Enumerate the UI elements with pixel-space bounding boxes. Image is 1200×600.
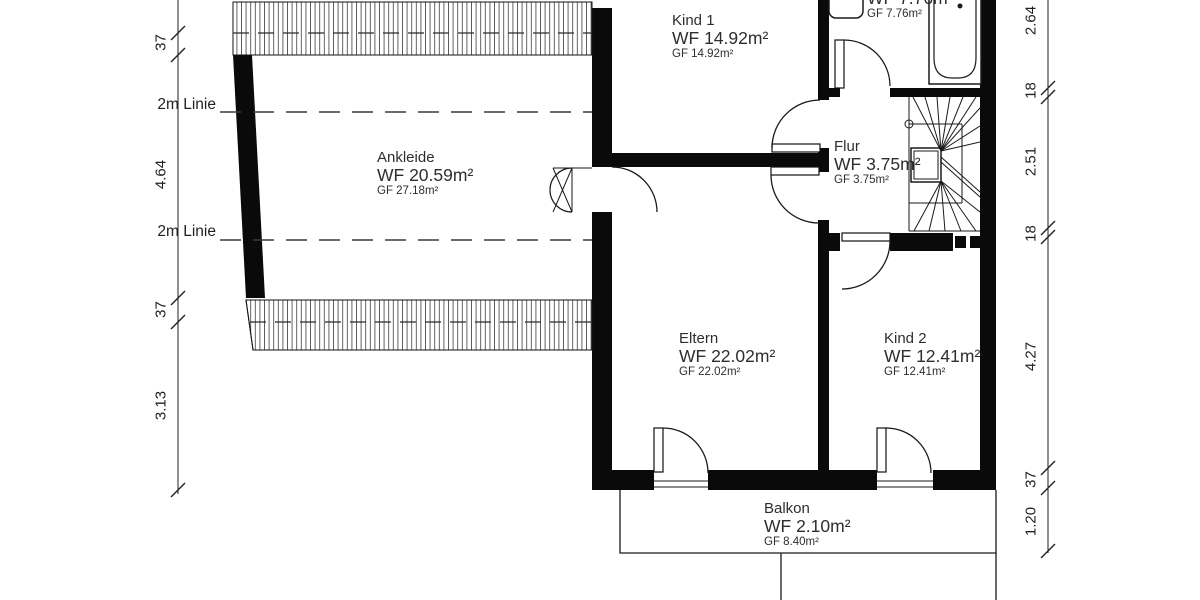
roof-hatch-band-bottom [246, 300, 592, 350]
room-name: Ankleide [377, 150, 473, 166]
roof-hatch-band-top [233, 2, 592, 55]
room-gf: GF 7.76m² [867, 8, 954, 20]
dim-right-120: 1.20 [1023, 487, 1040, 557]
room-label-kind2: Kind 2 WF 12.41m² GF 12.41m² [884, 331, 980, 378]
chimney-blocks [953, 233, 981, 251]
room-wf: WF 7.76m² [867, 0, 954, 7]
dim-right-18-lower: 18 [1023, 199, 1040, 269]
room-label-balkon: Balkon WF 2.10m² GF 8.40m² [764, 501, 851, 548]
room-label-ankleide: Ankleide WF 20.59m² GF 27.18m² [377, 150, 473, 197]
room-name: Kind 1 [672, 13, 768, 29]
room-wf: WF 20.59m² [377, 166, 473, 184]
room-gf: GF 27.18m² [377, 185, 473, 197]
room-label-flur: Flur WF 3.75m² GF 3.75m² [834, 139, 921, 186]
bath-door [835, 40, 890, 97]
room-name: Flur [834, 139, 921, 155]
room-wf: WF 12.41m² [884, 347, 980, 365]
kind2-door [840, 233, 890, 289]
floorplan-canvas: Kind 1 WF 14.92m² GF 14.92m² WF 7.76m² G… [0, 0, 1200, 600]
dimension-line-right [1041, 0, 1055, 558]
room-label-eltern: Eltern WF 22.02m² GF 22.02m² [679, 331, 775, 378]
room-wf: WF 2.10m² [764, 517, 851, 535]
room-wf: WF 3.75m² [834, 155, 921, 173]
dim-left-37-bottom: 37 [153, 275, 170, 345]
dim-left-313: 3.13 [153, 371, 170, 441]
room-name: Kind 2 [884, 331, 980, 347]
dimension-line-left [171, 0, 185, 497]
dim-2m-linie-upper: 2m Linie [130, 96, 216, 114]
room-name: Eltern [679, 331, 775, 347]
room-gf: GF 14.92m² [672, 48, 768, 60]
floorplan-drawing [0, 0, 1200, 600]
room-wf: WF 14.92m² [672, 29, 768, 47]
balcony-door-eltern [654, 428, 708, 490]
dim-right-18-upper: 18 [1023, 56, 1040, 126]
dim-right-427: 4.27 [1023, 322, 1040, 392]
room-wf: WF 22.02m² [679, 347, 775, 365]
room-gf: GF 12.41m² [884, 366, 980, 378]
dim-left-37-top: 37 [153, 8, 170, 78]
room-gf: GF 3.75m² [834, 174, 921, 186]
dim-right-264: 2.64 [1023, 0, 1040, 56]
eltern-door [771, 167, 829, 223]
balcony-door-kind2 [877, 428, 933, 490]
room-label-kind1: Kind 1 WF 14.92m² GF 14.92m² [672, 13, 768, 60]
kind1-door [772, 100, 829, 152]
room-gf: GF 8.40m² [764, 536, 851, 548]
ankleide-door [550, 167, 657, 212]
room-name: Balkon [764, 501, 851, 517]
room-gf: GF 22.02m² [679, 366, 775, 378]
sink-icon [829, 0, 863, 18]
room-label-bad: WF 7.76m² GF 7.76m² [867, 0, 954, 20]
dim-right-251: 2.51 [1023, 127, 1040, 197]
dim-2m-linie-lower: 2m Linie [130, 223, 216, 241]
dim-left-464: 4.64 [153, 140, 170, 210]
